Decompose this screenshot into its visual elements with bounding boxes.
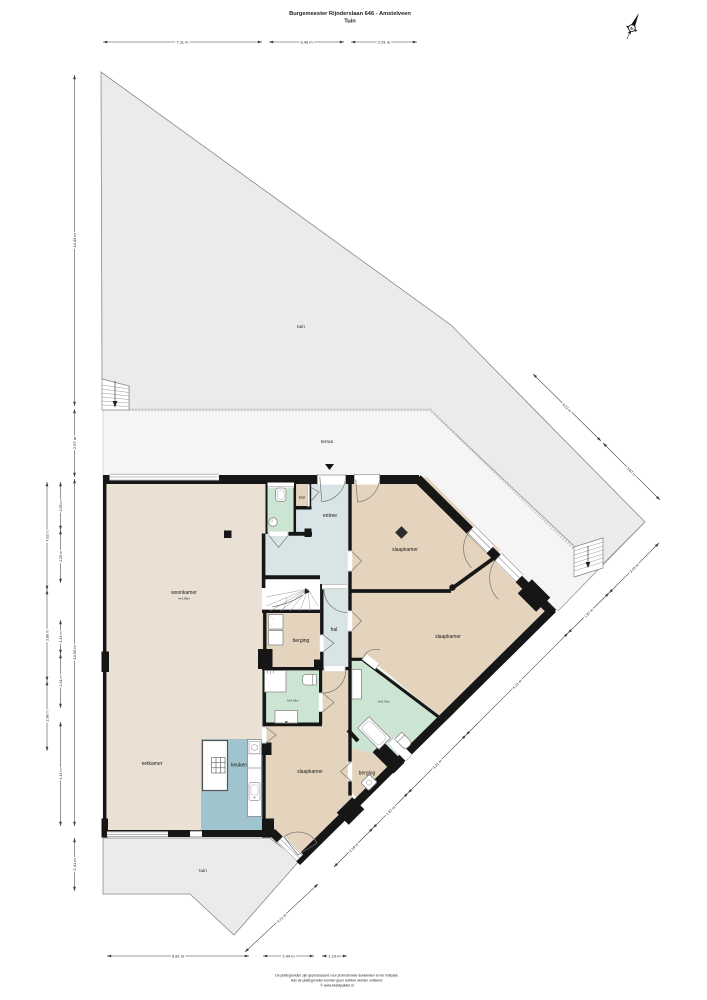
- svg-text:4.44 m: 4.44 m: [59, 769, 63, 780]
- svg-text:tuin: tuin: [199, 868, 207, 874]
- svg-text:h=2.41m: h=2.41m: [378, 700, 390, 704]
- svg-text:tuin: tuin: [297, 324, 305, 330]
- svg-text:entree: entree: [323, 513, 337, 519]
- svg-text:2.41 m: 2.41 m: [72, 858, 77, 871]
- svg-text:1.44 m: 1.44 m: [59, 632, 63, 643]
- svg-text:Burgemeester Rijnderslaan 646: Burgemeester Rijnderslaan 646 - Amstelve…: [289, 11, 411, 17]
- svg-text:2.05 m: 2.05 m: [59, 501, 63, 512]
- svg-text:slaapkamer: slaapkamer: [435, 634, 461, 640]
- svg-text:2.67 m: 2.67 m: [72, 436, 77, 449]
- svg-text:Tuin: Tuin: [344, 19, 356, 25]
- svg-text:De plattegronden zijn geproduc: De plattegronden zijn geproduceerd voor …: [275, 974, 399, 978]
- svg-text:1.10 m: 1.10 m: [328, 954, 341, 959]
- svg-text:2.91 m: 2.91 m: [378, 40, 391, 45]
- svg-text:14.43 m: 14.43 m: [72, 233, 77, 248]
- svg-text:2.25 m: 2.25 m: [59, 551, 63, 562]
- svg-text:h=2.85m: h=2.85m: [178, 597, 190, 601]
- svg-text:2.31 m: 2.31 m: [59, 676, 63, 687]
- svg-text:2.44 m: 2.44 m: [282, 954, 295, 959]
- svg-text:slaapkamer: slaapkamer: [297, 769, 323, 775]
- svg-text:14.50 m: 14.50 m: [72, 645, 77, 660]
- svg-text:4.62 m: 4.62 m: [46, 531, 50, 542]
- svg-text:terras: terras: [321, 439, 334, 445]
- svg-text:slaapkamer: slaapkamer: [392, 547, 418, 553]
- svg-text:berging: berging: [359, 771, 376, 777]
- svg-text:hal: hal: [331, 627, 338, 633]
- svg-text:2.98 m: 2.98 m: [46, 711, 50, 722]
- svg-text:kast: kast: [299, 496, 306, 500]
- svg-text:3.46 m: 3.46 m: [300, 40, 313, 45]
- svg-text:eetkamer: eetkamer: [142, 761, 163, 767]
- svg-text:© www.beeldpakket.nl: © www.beeldpakket.nl: [320, 984, 354, 988]
- svg-text:3.86 m: 3.86 m: [46, 630, 50, 641]
- svg-text:Aan de plattegronden kunnen ge: Aan de plattegronden kunnen geen rechten…: [291, 979, 383, 983]
- svg-text:woonkamer: woonkamer: [171, 590, 197, 596]
- svg-text:berging: berging: [293, 638, 310, 644]
- svg-text:6.81 m: 6.81 m: [172, 954, 185, 959]
- svg-text:keuken: keuken: [231, 763, 247, 769]
- svg-text:7.11 m: 7.11 m: [177, 40, 190, 45]
- svg-text:h=2.41m: h=2.41m: [287, 699, 299, 703]
